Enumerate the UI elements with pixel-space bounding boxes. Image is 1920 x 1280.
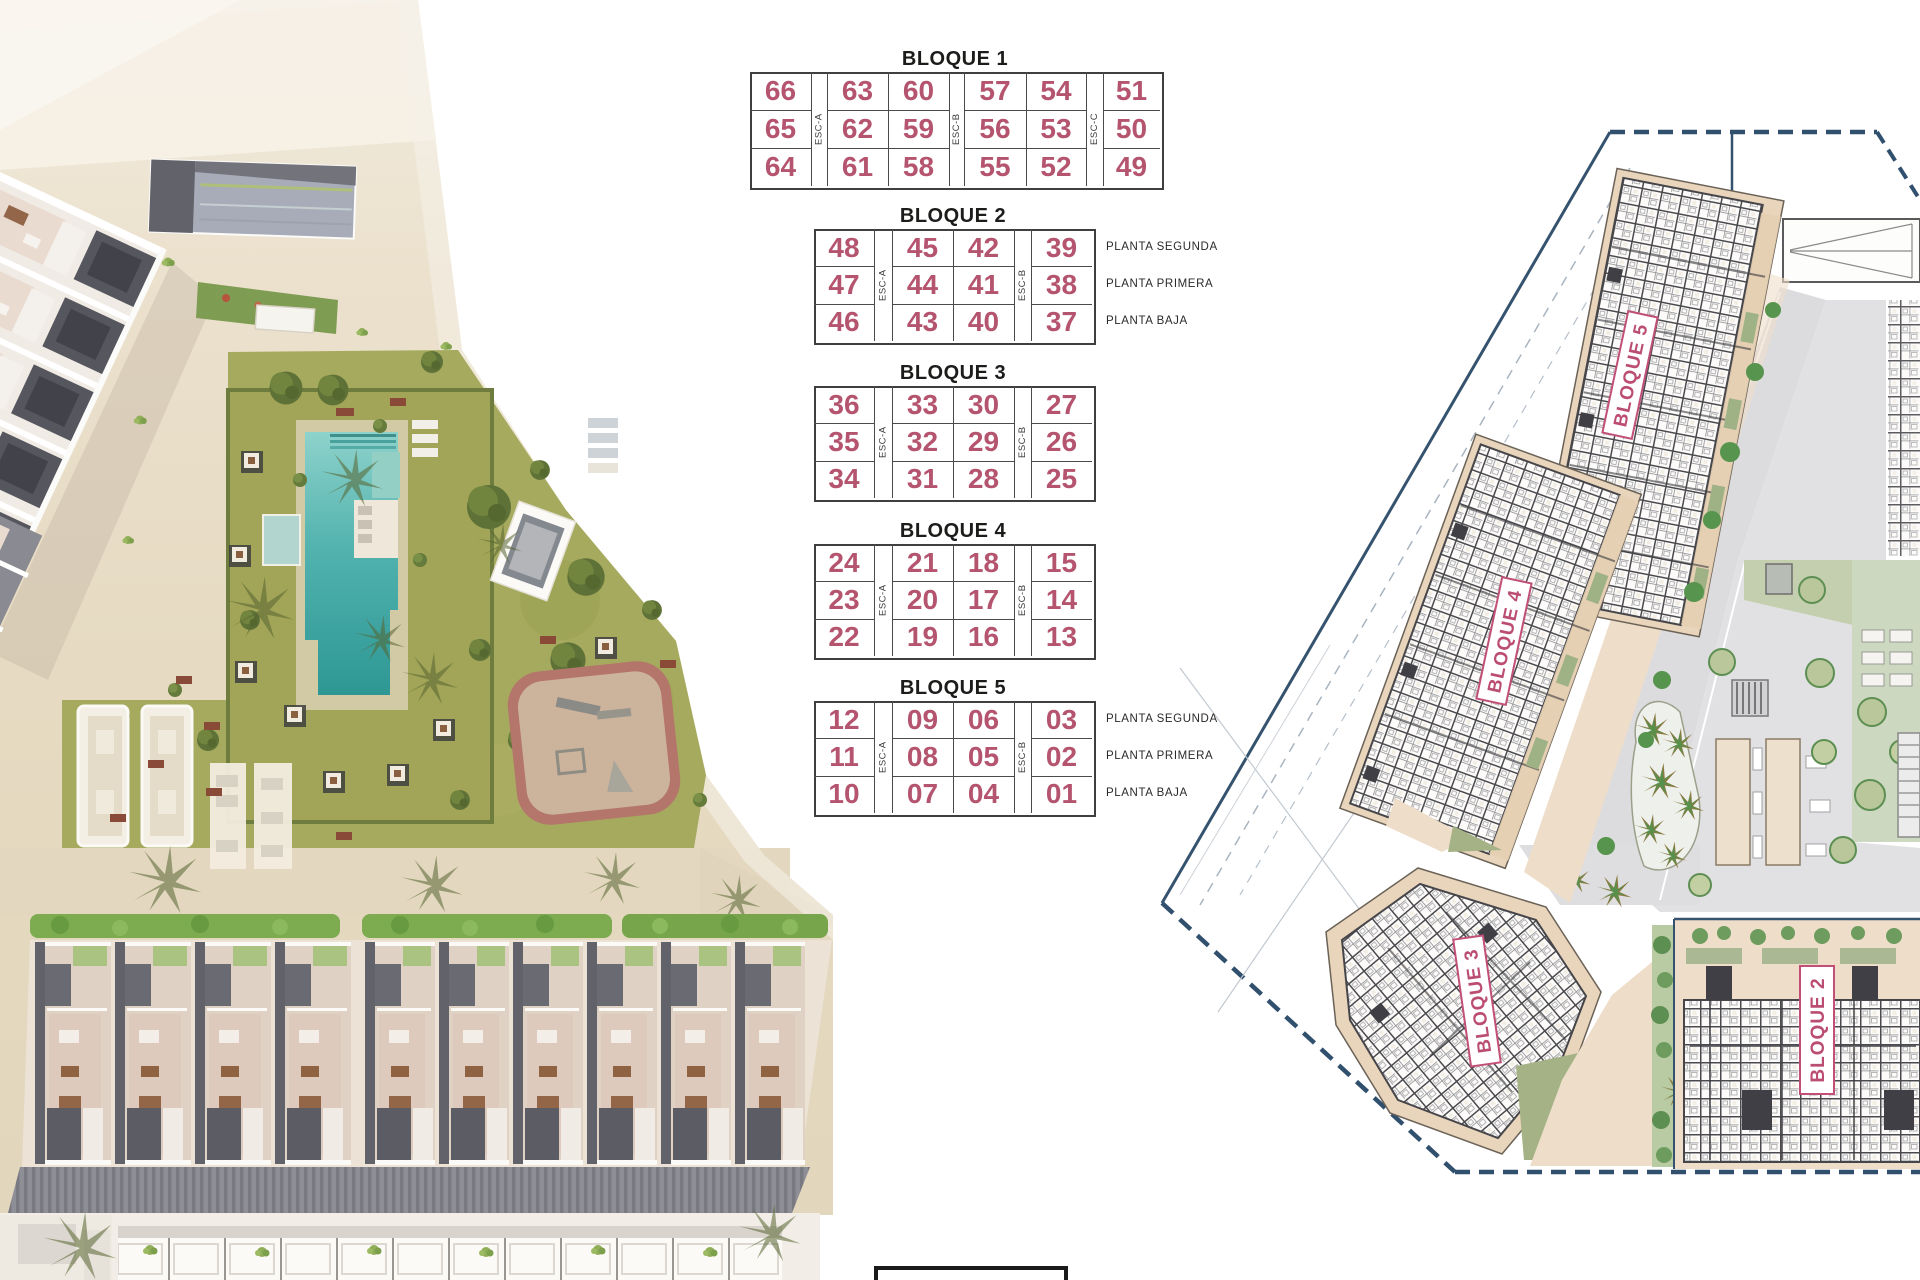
svg-text:BLOQUE 2: BLOQUE 2 (1808, 977, 1829, 1082)
